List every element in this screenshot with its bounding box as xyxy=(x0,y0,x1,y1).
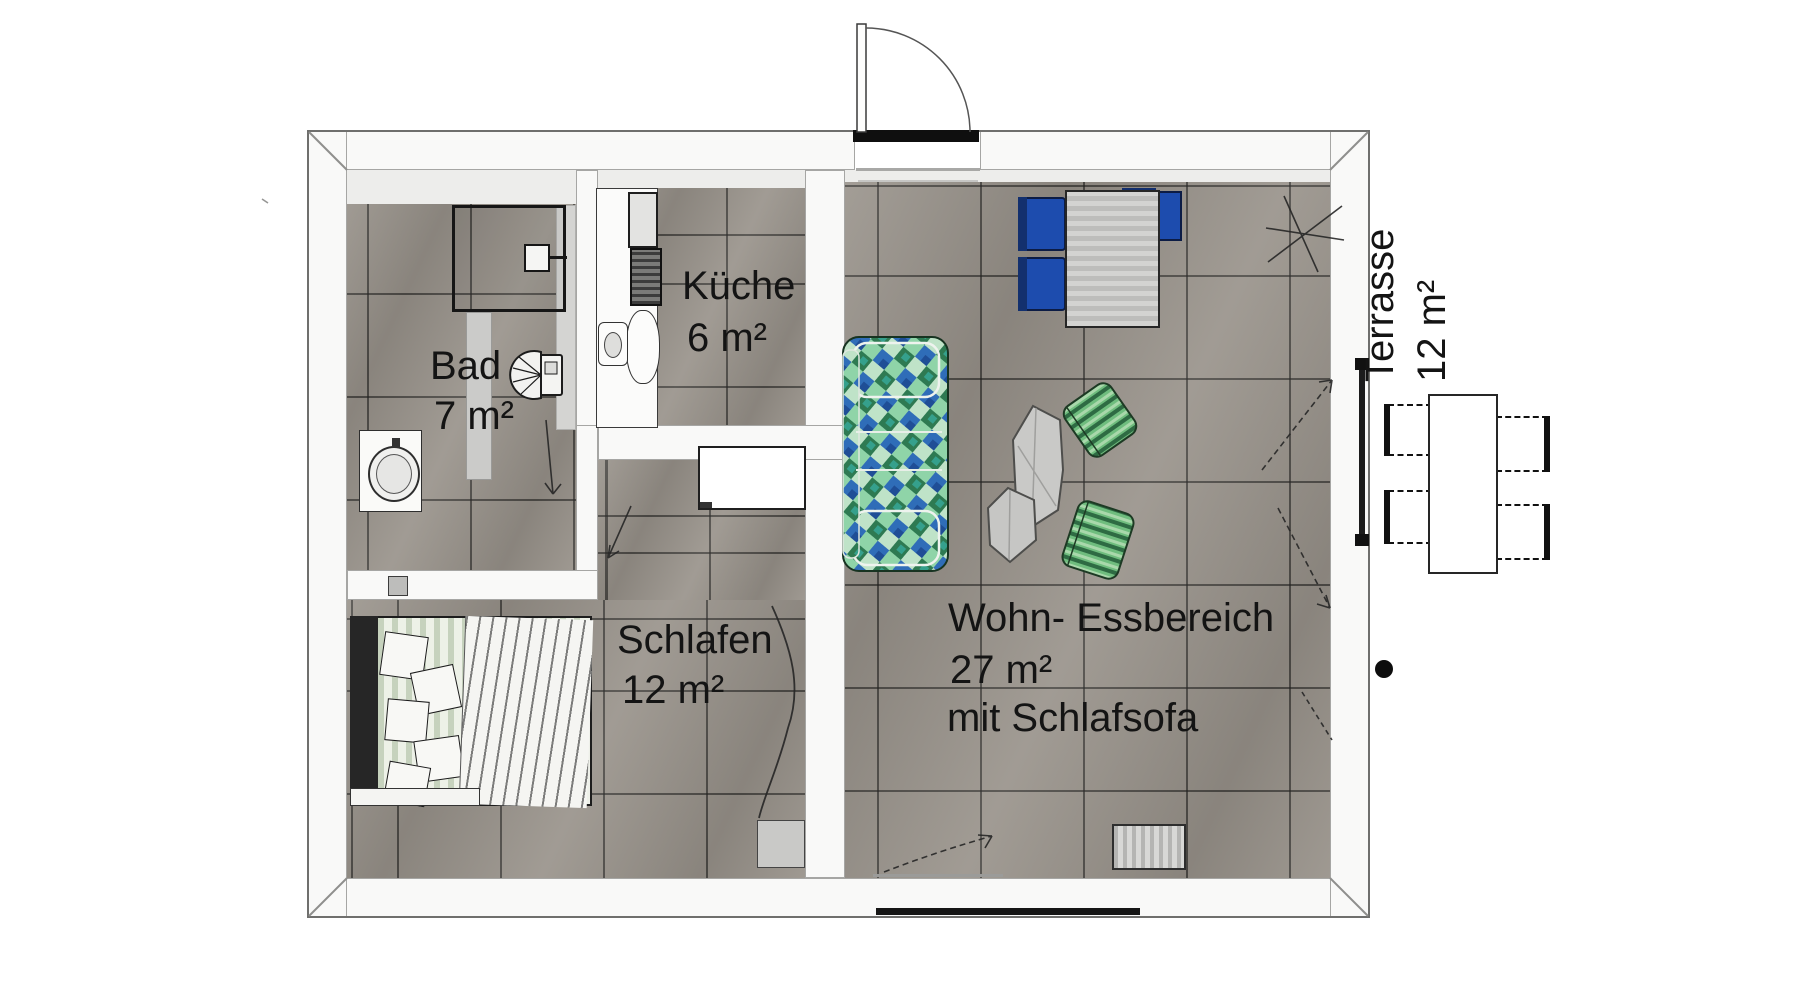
terrace-door-line xyxy=(1359,366,1365,542)
terrace-chair xyxy=(1388,404,1432,456)
pillow xyxy=(384,698,430,744)
bed-blanket xyxy=(459,616,593,808)
dining-chair-backrest xyxy=(1018,257,1027,311)
shower-fixture xyxy=(524,244,550,272)
terrace-chair-back xyxy=(1384,404,1390,456)
entrance-threshold-line2 xyxy=(858,180,978,182)
entrance-threshold-bar xyxy=(853,130,979,142)
room-label-wohn: Wohn- Essbereich xyxy=(948,596,1274,640)
living-radiator xyxy=(1112,824,1186,870)
entrance-door xyxy=(857,24,970,132)
room-area-bad: 7 m² xyxy=(434,394,514,438)
bottom-window-sill xyxy=(873,874,1003,877)
washbasin-inner xyxy=(376,454,412,494)
entrance-threshold-line xyxy=(856,168,980,171)
desk xyxy=(698,446,806,510)
room-label-terrasse: Terrasse xyxy=(1360,229,1400,382)
room-note-wohn: mit Schlafsofa xyxy=(947,696,1198,740)
fridge xyxy=(628,192,658,248)
room-label-kueche: Küche xyxy=(682,264,795,308)
terrace-table xyxy=(1428,394,1498,574)
shower-fixture-arm xyxy=(550,256,567,259)
terrace-chair-back xyxy=(1544,416,1550,472)
stove xyxy=(630,248,662,306)
room-area-terrasse: 12 m² xyxy=(1412,280,1452,382)
bed-headboard xyxy=(350,616,378,806)
bottom-window-line xyxy=(876,908,1140,915)
kitchen-counter-end xyxy=(626,310,660,384)
desk-detail xyxy=(700,502,712,508)
room-label-schlafen: Schlafen xyxy=(617,618,773,662)
room-area-kueche: 6 m² xyxy=(687,316,767,360)
room-area-schlafen: 12 m² xyxy=(622,668,724,712)
terrace-chair xyxy=(1496,416,1548,472)
floor-drain xyxy=(388,576,408,596)
bed-foot-board xyxy=(350,788,480,806)
room-area-wohn: 27 m² xyxy=(950,648,1052,692)
bedroom-radiator xyxy=(757,820,805,868)
door-handle-dot xyxy=(1375,660,1393,678)
dining-table xyxy=(1065,190,1160,328)
floor-plan: Bad 7 m² Küche 6 m² Schlafen 12 m² Wohn-… xyxy=(0,0,1800,1000)
washbasin-faucet xyxy=(392,438,400,448)
terrace-door-jamb xyxy=(1355,534,1369,546)
dining-chair-backrest xyxy=(1018,197,1027,251)
kitchen-sink-basin xyxy=(604,332,622,358)
terrace-chair-back xyxy=(1544,504,1550,560)
terrace-chair-back xyxy=(1384,490,1390,544)
room-label-bad: Bad xyxy=(430,344,501,388)
terrace-chair xyxy=(1388,490,1432,544)
terrace-chair xyxy=(1496,504,1548,560)
